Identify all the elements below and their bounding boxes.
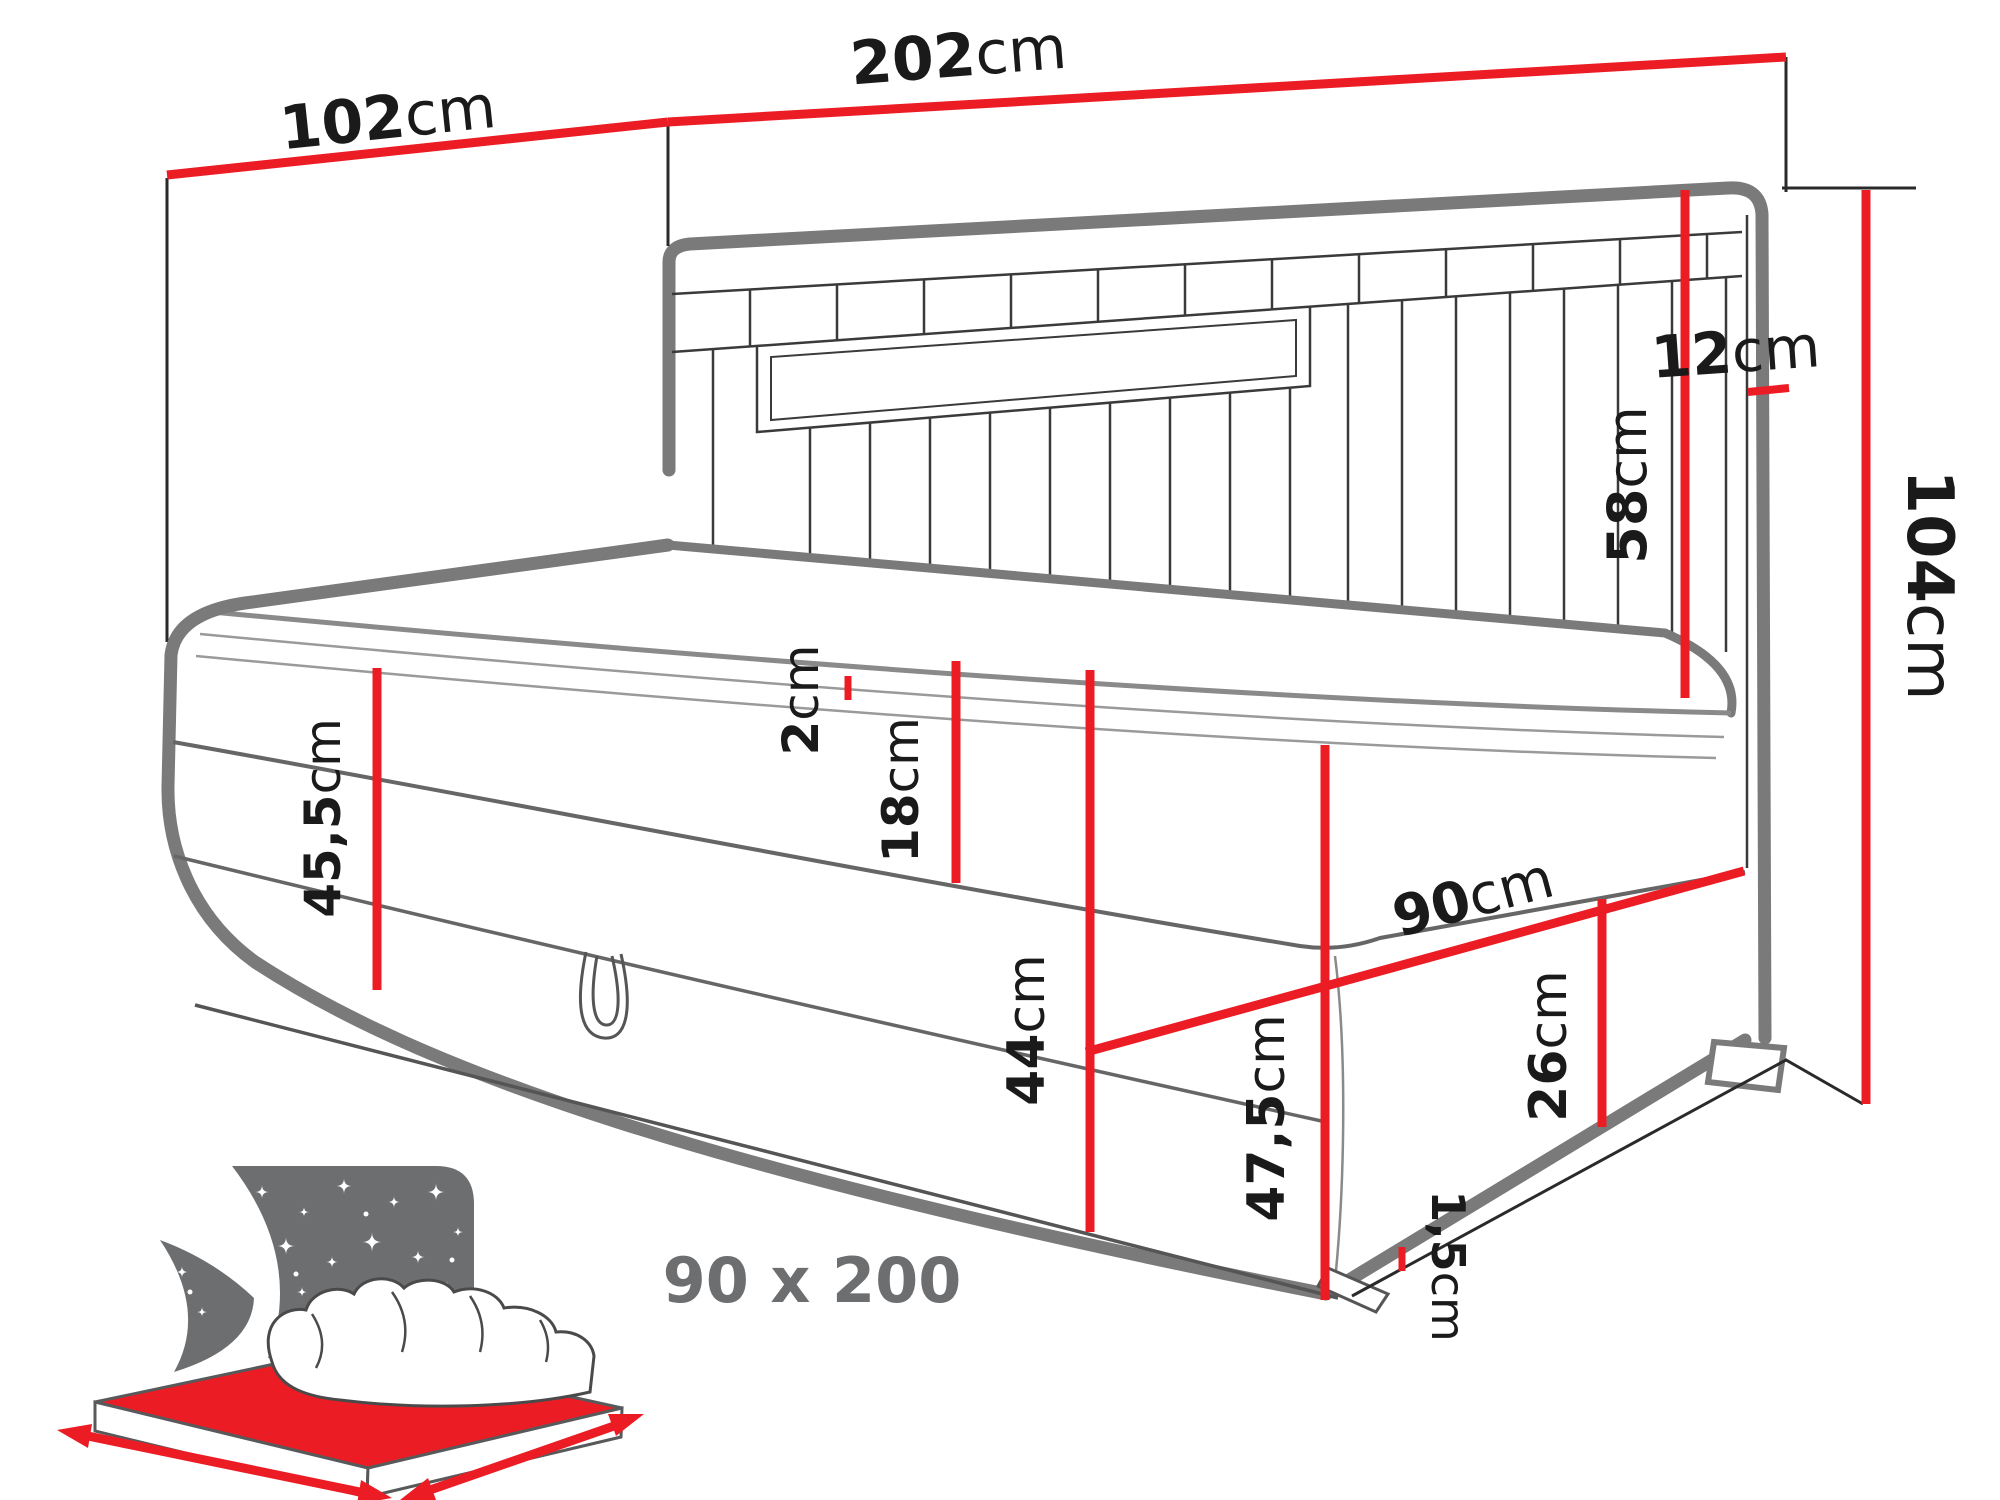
icon-star-dot [450, 1258, 455, 1263]
bed-drawing [167, 57, 1916, 1312]
label-1-5-value: 1,5 [1421, 1190, 1475, 1272]
label-47-5cm: 47,5cm [1237, 1014, 1297, 1222]
label-45-5-value: 45,5 [294, 794, 352, 917]
label-104-unit: cm [1892, 603, 1966, 701]
label-1-5cm: 1,5cm [1421, 1190, 1475, 1342]
icon-star-dot [244, 1204, 249, 1209]
label-12cm: 12cm [1649, 312, 1822, 392]
dimension-line-202 [668, 57, 1786, 122]
dimension-labels: 102cm 202cm 12cm 58cm 104cm 45,5cm 2cm 1… [277, 13, 1966, 1342]
label-47-5-unit: cm [1237, 1014, 1297, 1093]
label-44-unit: cm [997, 954, 1057, 1033]
label-18-value: 18 [872, 793, 930, 863]
label-26-value: 26 [1519, 1049, 1579, 1121]
label-58cm: 58cm [1596, 406, 1659, 563]
label-45-5-unit: cm [294, 718, 352, 794]
label-26-unit: cm [1519, 970, 1579, 1049]
label-104cm: 104cm [1892, 469, 1966, 700]
label-90-unit: cm [1461, 846, 1560, 931]
label-2-value: 2 [772, 721, 830, 756]
icon-star-dot [364, 1212, 369, 1217]
label-2cm: 2cm [772, 645, 830, 756]
label-44-value: 44 [997, 1033, 1057, 1105]
headboard-channels-below-niche [713, 349, 1290, 600]
corner-piping [1334, 956, 1343, 1290]
label-202-unit: cm [973, 13, 1070, 90]
label-18-unit: cm [872, 717, 930, 793]
label-45-5cm: 45,5cm [294, 718, 352, 918]
label-18cm: 18cm [872, 717, 930, 863]
icon-star-dot [188, 1290, 193, 1295]
icon-duvet [268, 1279, 594, 1406]
label-102cm: 102cm [277, 72, 500, 164]
icon-star-dot [294, 1272, 299, 1277]
label-58-unit: cm [1596, 406, 1659, 488]
label-58-value: 58 [1596, 489, 1659, 564]
label-102-unit: cm [401, 72, 499, 151]
label-26cm: 26cm [1519, 970, 1579, 1122]
label-2-unit: cm [772, 645, 830, 721]
diagram-page: 102cm 202cm 12cm 58cm 104cm 45,5cm 2cm 1… [0, 0, 2000, 1500]
label-104-value: 104 [1892, 469, 1966, 603]
label-1-5-unit: cm [1421, 1272, 1475, 1342]
mattress-size-icon: 90 x 200 [57, 1166, 961, 1500]
bed-dimension-diagram: 102cm 202cm 12cm 58cm 104cm 45,5cm 2cm 1… [0, 0, 2000, 1500]
label-44cm: 44cm [997, 954, 1057, 1106]
icon-crescent-shape [160, 1240, 254, 1372]
icon-size-label: 90 x 200 [663, 1244, 962, 1317]
icon-arrow-left-head-a [57, 1424, 92, 1448]
storage-handle-loop [580, 952, 627, 1038]
headboard-row-bottom-seam [672, 276, 1742, 352]
label-202-value: 202 [848, 20, 978, 100]
label-12-unit: cm [1729, 312, 1822, 386]
label-102-value: 102 [277, 82, 409, 165]
label-202cm: 202cm [848, 13, 1070, 100]
dimension-tick-12 [1748, 388, 1789, 392]
label-47-5-value: 47,5 [1237, 1093, 1297, 1221]
headboard-niche-inner [771, 320, 1296, 420]
label-12-value: 12 [1649, 318, 1734, 391]
label-90cm: 90cm [1386, 846, 1561, 951]
